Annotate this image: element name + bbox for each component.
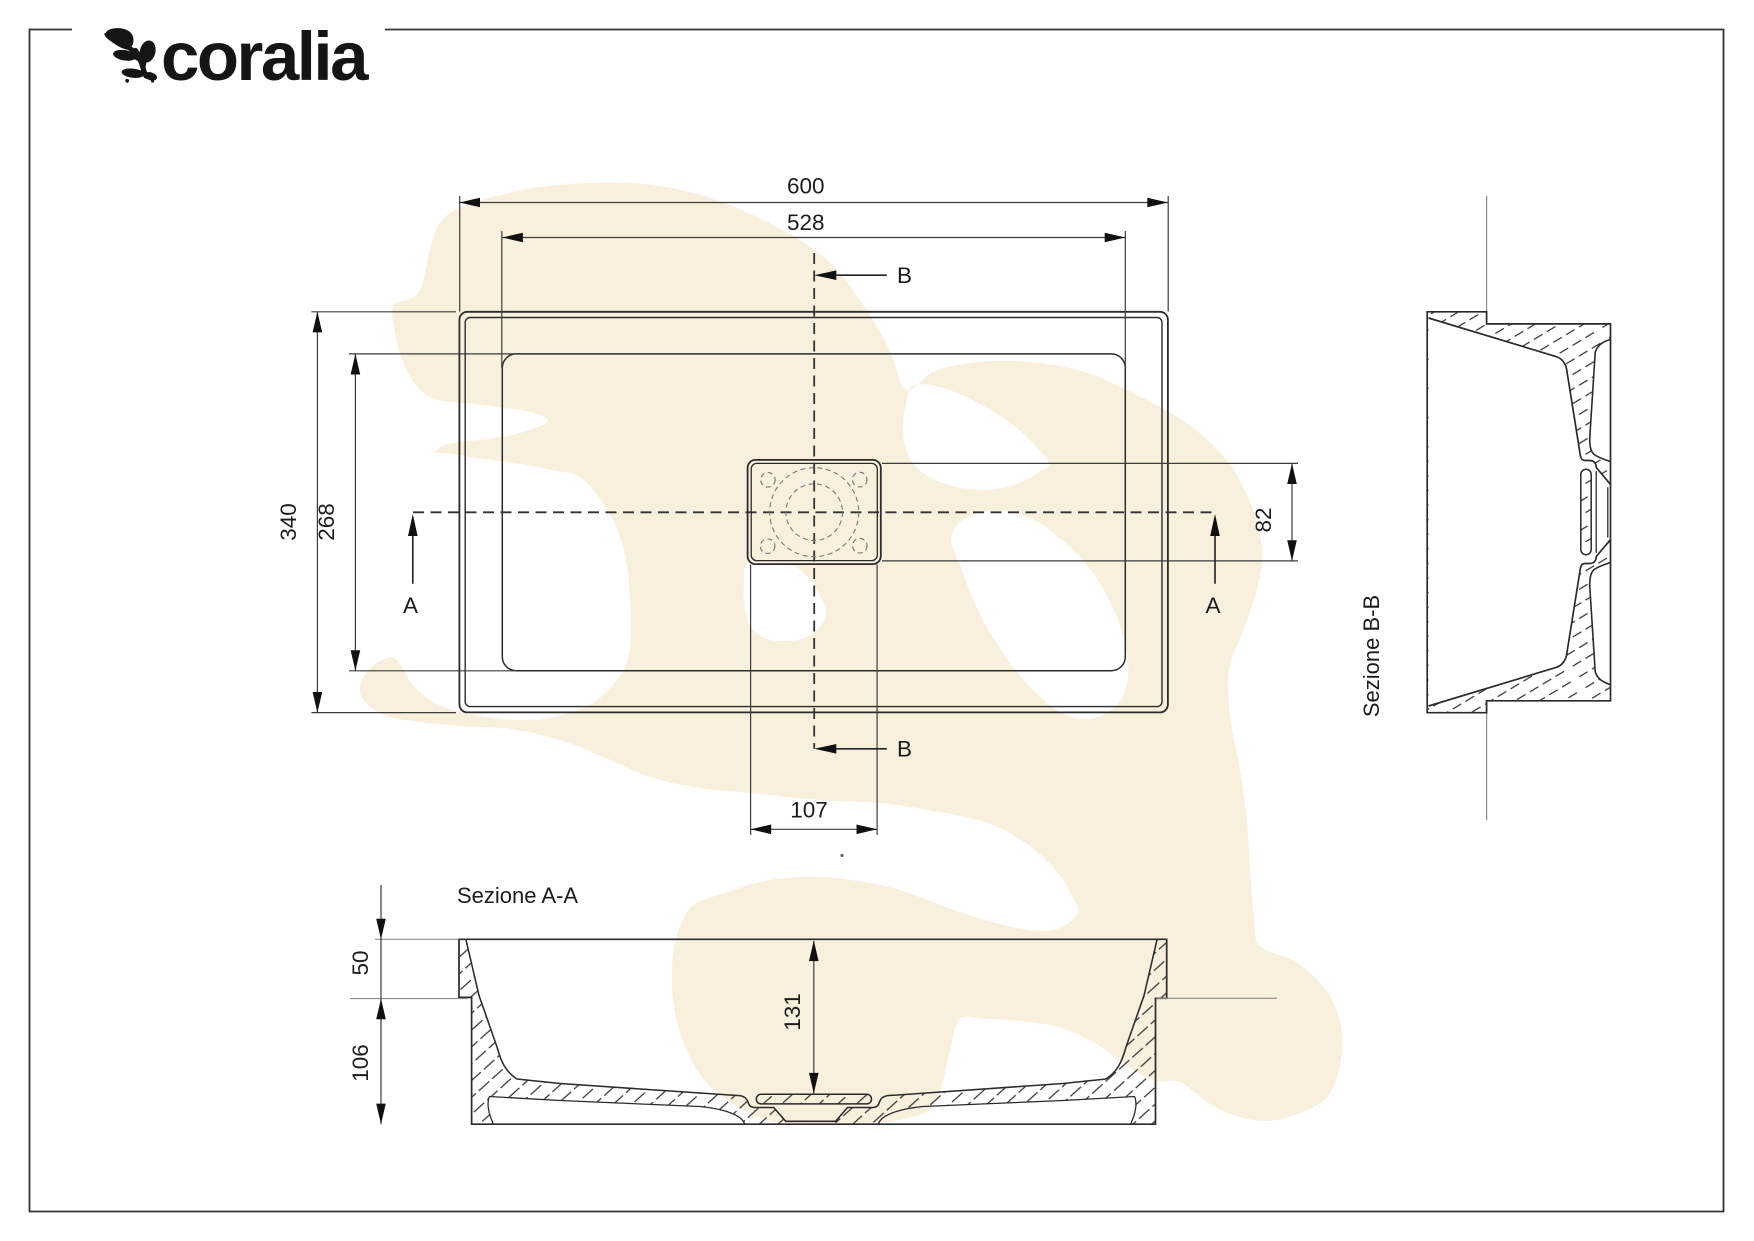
svg-text:B: B: [897, 263, 912, 288]
svg-text:82: 82: [1251, 507, 1276, 532]
svg-text:A: A: [1205, 593, 1220, 618]
svg-text:A: A: [403, 593, 418, 618]
svg-text:107: 107: [790, 798, 828, 823]
svg-text:50: 50: [348, 950, 373, 975]
svg-text:340: 340: [276, 503, 301, 541]
svg-text:131: 131: [780, 993, 805, 1031]
svg-text:Sezione A-A: Sezione A-A: [457, 883, 578, 908]
svg-text:528: 528: [787, 210, 825, 235]
svg-text:coralia: coralia: [161, 18, 369, 95]
svg-text:106: 106: [348, 1044, 373, 1082]
svg-text:Sezione B-B: Sezione B-B: [1359, 595, 1384, 717]
svg-text:268: 268: [314, 503, 339, 541]
svg-text:600: 600: [787, 174, 825, 199]
svg-text:B: B: [897, 737, 912, 762]
